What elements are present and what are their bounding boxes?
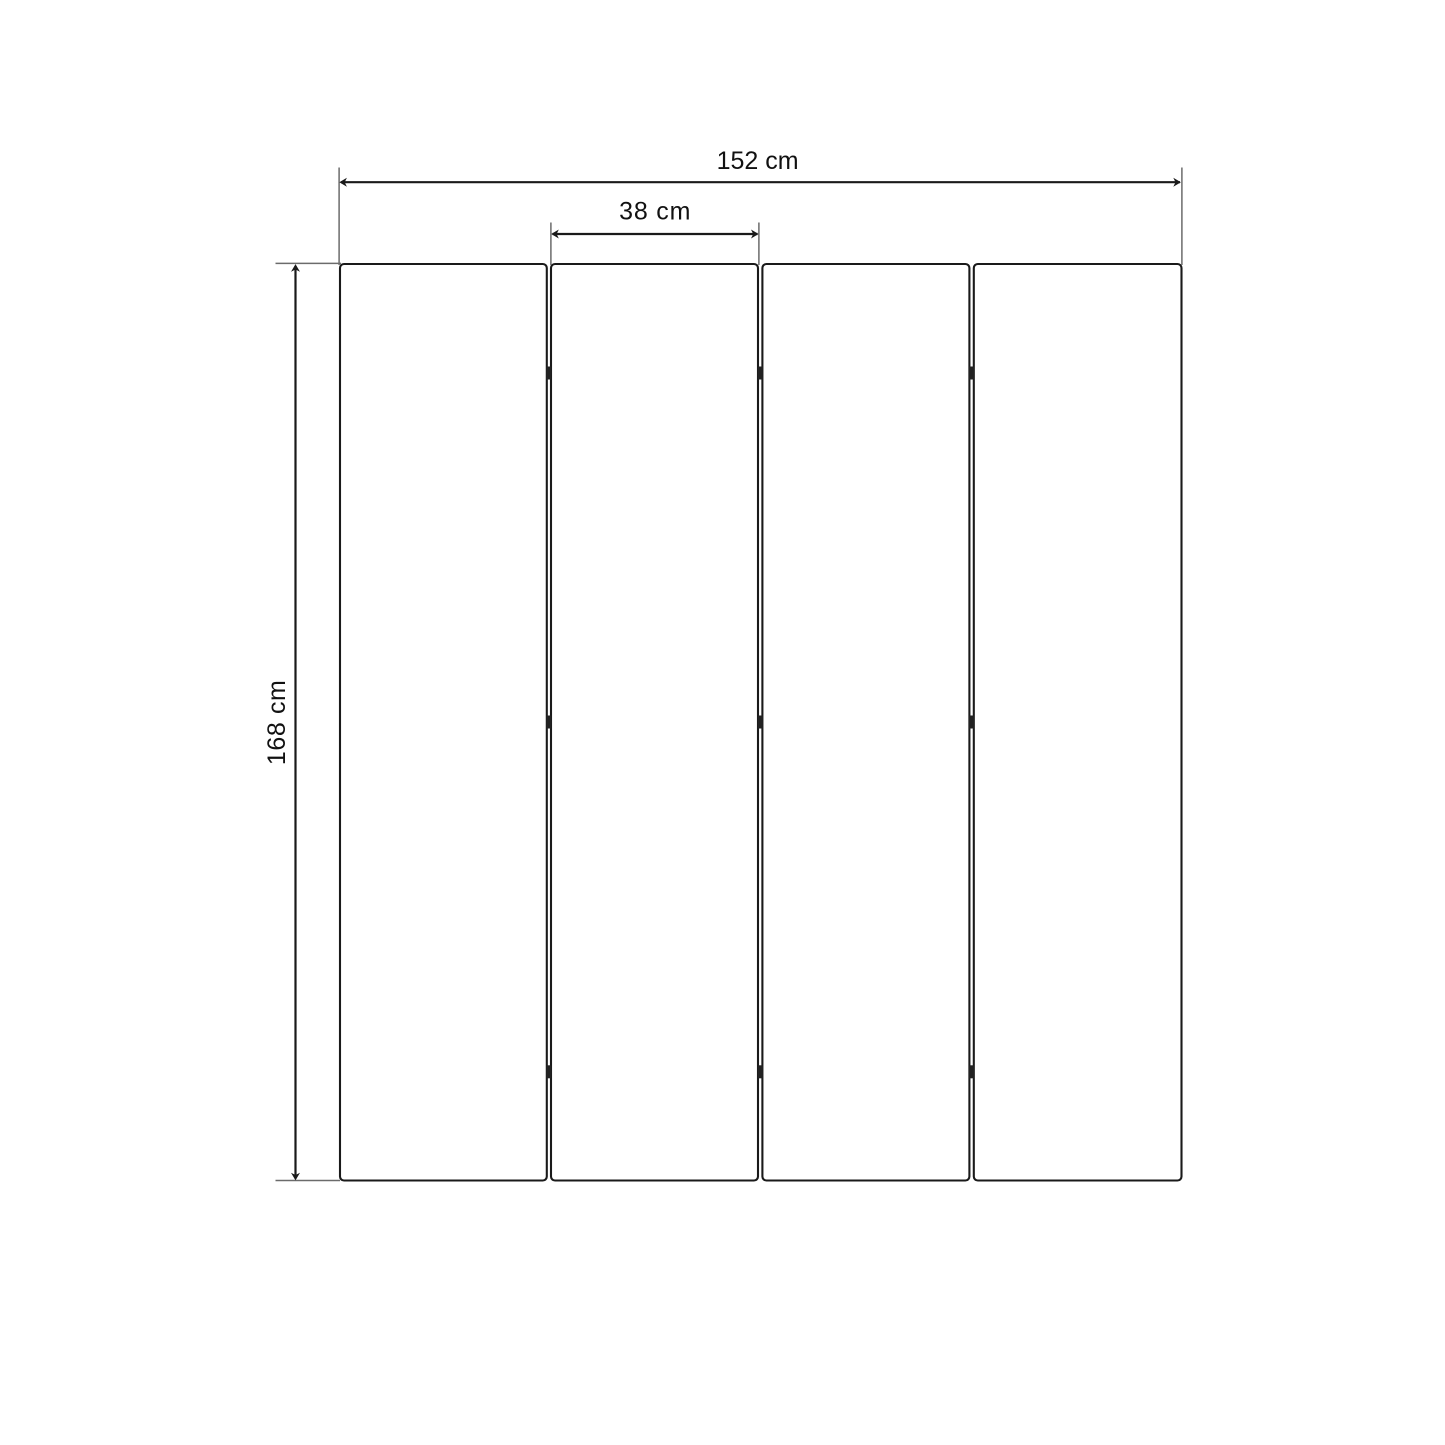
svg-text:152 cm: 152 cm: [717, 147, 799, 175]
svg-text:168 cm: 168 cm: [263, 680, 291, 766]
svg-text:38 cm: 38 cm: [619, 198, 691, 226]
